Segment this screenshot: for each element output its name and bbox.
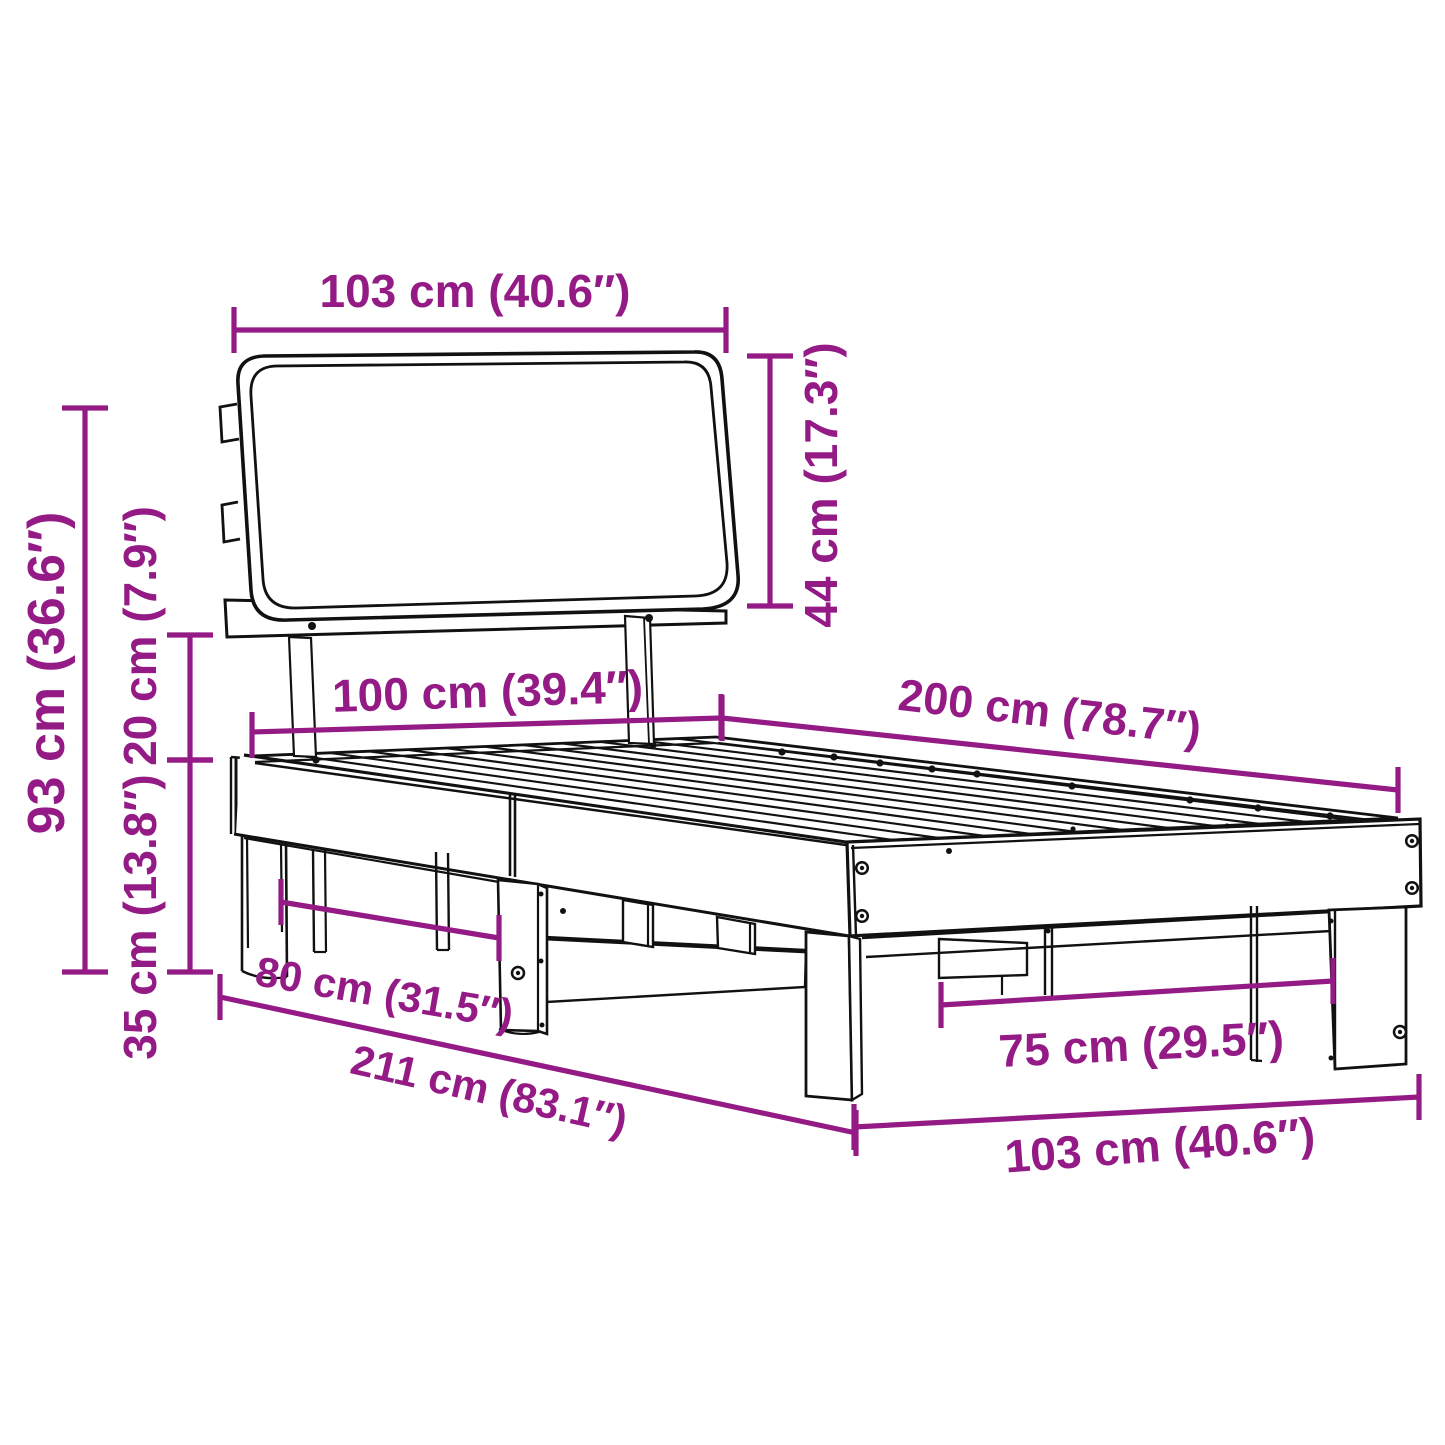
svg-text:93 cm (36.6″): 93 cm (36.6″) [18, 512, 76, 835]
svg-text:35 cm (13.8″): 35 cm (13.8″) [114, 774, 166, 1059]
svg-text:103 cm (40.6″): 103 cm (40.6″) [320, 265, 631, 317]
svg-text:44 cm (17.3″): 44 cm (17.3″) [795, 342, 847, 627]
svg-text:100 cm (39.4″): 100 cm (39.4″) [331, 660, 643, 722]
svg-text:20 cm (7.9″): 20 cm (7.9″) [114, 506, 166, 766]
